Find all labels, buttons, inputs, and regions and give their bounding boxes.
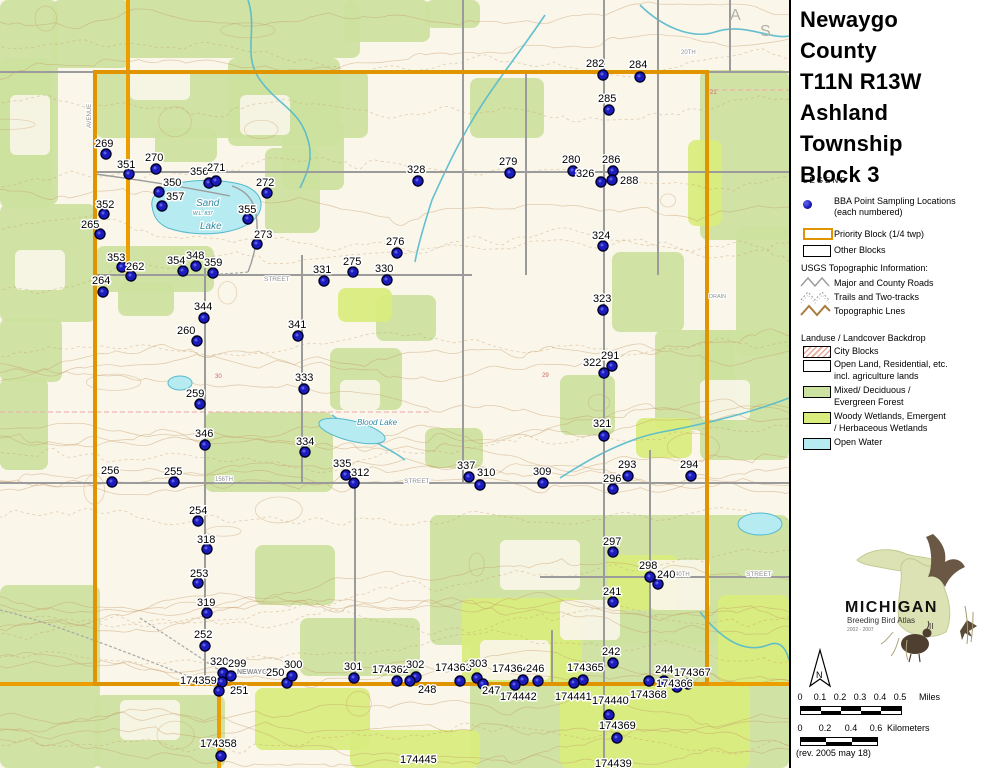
scale-tick-label: 0.1	[814, 692, 827, 702]
map-point-dot-highlight	[203, 644, 206, 647]
map-point-dot-highlight	[211, 271, 214, 274]
map-point-dot-highlight	[395, 251, 398, 254]
map-point-dot-highlight	[541, 481, 544, 484]
map-point-dot-highlight	[229, 674, 232, 677]
map-point-dot-highlight	[416, 179, 419, 182]
map-point-dot-highlight	[610, 364, 613, 367]
map-point-label: 299	[228, 658, 246, 670]
legend-mixed-label: Mixed/ Deciduous /	[834, 385, 911, 396]
quail-icon	[901, 634, 929, 654]
svg-text:Lake: Lake	[200, 221, 222, 232]
map-point-label: 293	[618, 459, 636, 471]
map-point-dot-highlight	[648, 575, 651, 578]
map-point-dot-highlight	[98, 232, 101, 235]
svg-text:20TH: 20TH	[681, 50, 696, 56]
map-point-label: 346	[195, 428, 213, 440]
section-number: 21	[710, 90, 717, 96]
map-point-dot-highlight	[611, 487, 614, 490]
map-point-dot-highlight	[296, 334, 299, 337]
scale-bar-cell	[826, 742, 851, 746]
street-label: 40TH40TH	[675, 572, 690, 578]
forest-patch	[118, 282, 174, 316]
map-point-dot-highlight	[214, 179, 217, 182]
scale-bar-cell	[801, 742, 826, 746]
legend-city-label: City Blocks	[834, 346, 879, 357]
map-point-dot-highlight	[508, 171, 511, 174]
map-point-dot-highlight	[127, 172, 130, 175]
svg-text:STREET: STREET	[746, 571, 772, 578]
map-point-dot-highlight	[615, 736, 618, 739]
map-point-label: 265	[81, 219, 99, 231]
map-point-label: 334	[296, 436, 314, 448]
map-point-dot-highlight	[202, 316, 205, 319]
map-point-label: 174442	[500, 691, 537, 703]
forest-patch	[255, 545, 335, 605]
svg-text:DRAIN: DRAIN	[709, 294, 726, 300]
scale-tick-label: 0.2	[834, 692, 847, 702]
bba-map-page: ASNEWAYGONEWAYGOSTREETSTREETSTREETSTREET…	[0, 0, 1000, 768]
map-point-label: 319	[197, 597, 215, 609]
map-point-dot-highlight	[478, 483, 481, 486]
map-point-label: 270	[145, 152, 163, 164]
forest-swatch	[803, 386, 831, 398]
map-point-dot-highlight	[157, 190, 160, 193]
map-point-dot-highlight	[198, 402, 201, 405]
map-point-label: 356	[190, 166, 208, 178]
map-point-dot-highlight	[194, 264, 197, 267]
svg-text:Sand: Sand	[196, 198, 220, 209]
map-point-label: 240	[657, 569, 675, 581]
map-point-dot-highlight	[602, 371, 605, 374]
map-point-label: 350	[163, 177, 181, 189]
map-canvas: ASNEWAYGONEWAYGOSTREETSTREETSTREETSTREET…	[0, 0, 789, 768]
street-label: STREETSTREET	[746, 571, 772, 578]
svg-text:W.L. 837: W.L. 837	[193, 211, 213, 217]
map-point-dot-highlight	[196, 581, 199, 584]
scale-tick-label: 0.3	[854, 692, 867, 702]
map-point-label: 174369	[599, 720, 636, 732]
map-point-dot-highlight	[395, 679, 398, 682]
map-point-label: 252	[194, 629, 212, 641]
scale-bar-cell	[881, 711, 901, 715]
map-point-dot-highlight	[352, 481, 355, 484]
legend-woody-label: Woody Wetlands, Emergent	[834, 411, 946, 422]
map-point-dot-highlight	[581, 678, 584, 681]
map-point-dot-highlight	[220, 680, 223, 683]
map-point-dot-highlight	[196, 519, 199, 522]
map-point-dot-highlight	[610, 178, 613, 181]
map-point-label: 310	[477, 467, 495, 479]
map-point-dot-highlight	[656, 582, 659, 585]
street-label: AVENUEAVENUE	[87, 104, 93, 128]
map-point-label: 352	[96, 199, 114, 211]
svg-text:40TH: 40TH	[675, 572, 690, 578]
open-land-patch	[500, 540, 580, 590]
svg-text:Blood Lake: Blood Lake	[357, 418, 398, 427]
topo-map: ASNEWAYGONEWAYGOSTREETSTREETSTREETSTREET…	[0, 0, 789, 768]
map-point-dot-highlight	[160, 204, 163, 207]
map-point-dot-highlight	[205, 547, 208, 550]
map-point-label: 269	[95, 138, 113, 150]
map-point-dot-highlight	[467, 475, 470, 478]
map-point-dot-highlight	[246, 217, 249, 220]
map-point-dot-highlight	[572, 681, 575, 684]
scale-tick-label: 0.6	[870, 723, 883, 733]
map-point-label: 244	[655, 664, 673, 676]
map-point-label: 323	[593, 293, 611, 305]
forest-patch	[52, 0, 130, 68]
legend-priority-label: Priority Block (1/4 twp)	[834, 229, 924, 240]
forest-patch	[265, 148, 320, 233]
city-blocks-swatch	[803, 346, 831, 358]
water-label: SandSand	[196, 198, 220, 209]
map-point-label: 262	[126, 261, 144, 273]
map-point-label: 326	[576, 168, 594, 180]
map-point-label: 174439	[595, 758, 632, 768]
priority-block-swatch	[803, 228, 833, 240]
map-point-dot-highlight	[102, 212, 105, 215]
map-point-label: 260	[177, 325, 195, 337]
pond	[738, 513, 782, 535]
map-point-dot-highlight	[285, 681, 288, 684]
open-water-swatch	[803, 438, 831, 450]
map-point-dot-highlight	[303, 450, 306, 453]
legend-other-label: Other Blocks	[834, 245, 886, 256]
map-point-label: 273	[254, 229, 272, 241]
township-watermark: S	[760, 23, 771, 40]
map-point-label: 321	[593, 418, 611, 430]
scale-unit-label: Kilometers	[887, 723, 930, 733]
open-land-patch	[130, 60, 190, 100]
svg-text:AVENUE: AVENUE	[87, 104, 93, 128]
map-point-label: 282	[586, 58, 604, 70]
map-point-dot-highlight	[352, 676, 355, 679]
map-point-dot-highlight	[601, 244, 604, 247]
map-point-label: 291	[601, 350, 619, 362]
map-point-label: 300	[284, 659, 302, 671]
map-point-label: 322	[583, 357, 601, 369]
map-point-dot-highlight	[385, 278, 388, 281]
map-point-label: 174441	[555, 691, 592, 703]
map-point-label: 296	[603, 473, 621, 485]
map-point-label: 333	[295, 372, 313, 384]
map-point-label: 335	[333, 458, 351, 470]
map-point-dot-highlight	[408, 679, 411, 682]
logo-name: MICHIGAN	[845, 599, 938, 616]
map-point-label: 284	[629, 59, 647, 71]
map-point-label: 174363	[435, 662, 472, 674]
map-point-label: 246	[526, 663, 544, 675]
page-title: Newaygo County T11N R13W Ashland Townshi…	[800, 4, 922, 190]
map-point-label: 174359	[180, 675, 217, 687]
map-point-label: 174364	[492, 663, 529, 675]
map-point-label: 279	[499, 156, 517, 168]
map-point-label: 328	[407, 164, 425, 176]
map-point-dot-highlight	[475, 676, 478, 679]
open-land-patch	[240, 95, 290, 135]
wetland-patch	[338, 288, 392, 322]
map-point-dot-highlight	[689, 474, 692, 477]
map-point-dot-highlight	[120, 265, 123, 268]
map-point-dot-highlight	[647, 679, 650, 682]
legend-heading: LEGEND	[803, 176, 848, 185]
map-point-dot-highlight	[611, 169, 614, 172]
map-point-dot-highlight	[344, 473, 347, 476]
map-point-dot-highlight	[205, 611, 208, 614]
map-point-dot-highlight	[602, 434, 605, 437]
map-point-label: 303	[469, 658, 487, 670]
svg-text:STREET: STREET	[404, 478, 430, 485]
map-point-label: 174368	[630, 689, 667, 701]
section-number: 29	[542, 373, 549, 379]
wetland-swatch	[803, 412, 831, 424]
map-point-label: 285	[598, 93, 616, 105]
map-point-label: 174365	[567, 662, 604, 674]
map-point-dot-highlight	[154, 167, 157, 170]
map-point-dot-highlight	[101, 290, 104, 293]
forest-patch	[612, 252, 684, 332]
map-point-label: 297	[603, 536, 621, 548]
forest-patch	[0, 378, 48, 470]
map-point-label: 355	[238, 204, 256, 216]
scale-tick-label: 0.2	[819, 723, 832, 733]
map-point-dot-highlight	[110, 480, 113, 483]
map-point-label: 309	[533, 466, 551, 478]
scale-tick-label: 0.4	[845, 723, 858, 733]
map-point-label: 344	[194, 301, 212, 313]
map-point-dot-highlight	[265, 191, 268, 194]
forest-patch	[124, 0, 360, 58]
map-point-label: 354	[167, 255, 185, 267]
svg-text:156TH: 156TH	[215, 477, 233, 483]
map-point-label: 275	[343, 256, 361, 268]
map-point-label: 288	[620, 175, 638, 187]
bba-point-swatch	[803, 200, 812, 209]
legend-roads-label: Major and County Roads	[834, 278, 934, 289]
map-point-dot-highlight	[638, 75, 641, 78]
water-label: LakeLake	[200, 221, 222, 232]
map-point-label: 255	[164, 466, 182, 478]
map-point-label: 348	[186, 250, 204, 262]
map-point-dot-highlight	[571, 169, 574, 172]
legend-open-label: Open Land, Residential, etc.	[834, 359, 948, 370]
legend-trails-label: Trails and Two-tracks	[834, 292, 919, 303]
map-point-label: 259	[186, 388, 204, 400]
map-point-label: 254	[189, 505, 207, 517]
map-point-dot-highlight	[203, 443, 206, 446]
map-point-label: 312	[351, 467, 369, 479]
map-point-label: 253	[190, 568, 208, 580]
scale-bar-cell	[821, 711, 841, 715]
other-blocks-swatch	[803, 245, 831, 257]
street-label: STREETSTREET	[404, 478, 430, 485]
map-point-label: 302	[406, 659, 424, 671]
map-point-dot-highlight	[611, 661, 614, 664]
map-point-dot-highlight	[322, 279, 325, 282]
revision-note: (rev. 2005 may 18)	[796, 748, 871, 758]
map-point-dot-highlight	[601, 308, 604, 311]
map-point-dot-highlight	[607, 108, 610, 111]
map-point-dot-highlight	[181, 269, 184, 272]
map-point-dot-highlight	[172, 480, 175, 483]
map-point-dot-highlight	[219, 754, 222, 757]
street-label: STREETSTREET	[264, 276, 290, 283]
map-point-label: 174362	[372, 664, 409, 676]
map-point-label: 324	[592, 230, 610, 242]
map-point-label: 298	[639, 560, 657, 572]
legend-bba-label2: (each numbered)	[834, 207, 903, 218]
map-point-dot-highlight	[207, 181, 210, 184]
topo-lines-swatch	[799, 302, 831, 318]
logo-numeral: II	[929, 622, 933, 631]
street-label: DRAINDRAIN	[709, 294, 726, 300]
usgs-heading: USGS Topographic Information:	[801, 263, 928, 273]
open-land-swatch	[803, 360, 831, 372]
quail-legs	[909, 654, 920, 662]
map-point-label: 318	[197, 534, 215, 546]
map-point-label: 174358	[200, 738, 237, 750]
map-point-label: 276	[386, 236, 404, 248]
info-panel: Newaygo County T11N R13W Ashland Townshi…	[791, 0, 1000, 768]
map-point-label: 301	[344, 661, 362, 673]
map-point-dot-highlight	[521, 678, 524, 681]
map-point-label: 271	[207, 162, 225, 174]
map-point-label: 280	[562, 154, 580, 166]
map-point-label: 359	[204, 257, 222, 269]
map-point-label: 256	[101, 465, 119, 477]
map-point-label: 241	[603, 586, 621, 598]
map-point-label: 337	[457, 460, 475, 472]
street-label: 20TH20TH	[681, 50, 696, 56]
map-point-label: 174440	[592, 695, 629, 707]
scale-bar-cell	[861, 711, 881, 715]
map-point-label: 330	[375, 263, 393, 275]
north-arrow: N	[805, 648, 835, 694]
map-point-label: 353	[107, 252, 125, 264]
map-point-label: 251	[230, 685, 248, 697]
street-label: 156TH156TH	[215, 477, 233, 483]
map-point-dot-highlight	[536, 679, 539, 682]
north-arrow-label: N	[816, 670, 823, 680]
map-point-label: 272	[256, 177, 274, 189]
map-point-dot-highlight	[221, 671, 224, 674]
scale-tick-label: 0.4	[874, 692, 887, 702]
scale-tick-label: 0	[797, 723, 802, 733]
map-point-dot-highlight	[513, 683, 516, 686]
map-point-label: 341	[288, 319, 306, 331]
legend-topo-label: Topographic Lnes	[834, 306, 905, 317]
section-number: 30	[215, 374, 222, 380]
map-point-label: 250	[266, 667, 284, 679]
map-point-dot-highlight	[290, 674, 293, 677]
miles-scale-bar	[800, 706, 902, 715]
map-point-dot-highlight	[195, 339, 198, 342]
mbba-logo: MICHIGAN Breeding Bird Atlas 2002 - 2007…	[837, 528, 997, 668]
map-point-label: 248	[418, 684, 436, 696]
logo-years: 2002 - 2007	[847, 627, 874, 633]
legend-water-label: Open Water	[834, 437, 882, 448]
logo-subtitle: Breeding Bird Atlas	[847, 616, 915, 625]
map-point-label: 294	[680, 459, 698, 471]
water-label: Blood LakeBlood Lake	[357, 418, 398, 427]
map-point-dot-highlight	[458, 679, 461, 682]
map-point-label: 357	[166, 191, 184, 203]
landuse-heading: Landuse / Landcover Backdrop	[801, 333, 926, 343]
map-point-dot-highlight	[607, 713, 610, 716]
km-scale-bar	[800, 737, 878, 746]
forest-patch	[344, 0, 430, 42]
map-point-dot-highlight	[601, 73, 604, 76]
map-point-dot-highlight	[302, 387, 305, 390]
map-point-label: 174445	[400, 754, 437, 766]
map-point-dot-highlight	[104, 152, 107, 155]
map-point-label: 286	[602, 154, 620, 166]
scale-unit-label: Miles	[919, 692, 940, 702]
map-point-label: 264	[92, 275, 110, 287]
songbird-icon	[960, 620, 977, 640]
map-point-label: 320	[210, 656, 228, 668]
scale-bar-cell	[841, 711, 861, 715]
scale-bar-cell	[852, 742, 877, 746]
open-land-patch	[15, 250, 65, 290]
map-point-dot-highlight	[626, 474, 629, 477]
legend-open-label2: incl. agriculture lands	[834, 371, 919, 382]
legend-mixed-label2: Evergreen Forest	[834, 397, 904, 408]
map-point-label: 247	[482, 685, 500, 697]
legend-bba-label: BBA Point Sampling Locations	[834, 196, 956, 207]
map-point-dot-highlight	[217, 689, 220, 692]
map-point-label: 351	[117, 159, 135, 171]
open-land-patch	[10, 95, 50, 155]
map-point-dot-highlight	[611, 600, 614, 603]
scale-tick-label: 0	[797, 692, 802, 702]
map-point-dot-highlight	[599, 180, 602, 183]
map-point-dot-highlight	[255, 242, 258, 245]
map-point-dot-highlight	[611, 550, 614, 553]
map-point-label: 242	[602, 646, 620, 658]
water-label: W.L. 837W.L. 837	[193, 211, 213, 217]
forest-patch	[470, 78, 544, 138]
township-watermark: A	[730, 7, 741, 24]
svg-text:STREET: STREET	[264, 276, 290, 283]
map-point-dot-highlight	[351, 270, 354, 273]
legend-woody-label2: / Herbaceous Wetlands	[834, 423, 927, 434]
open-land-patch	[340, 380, 380, 410]
scale-bar-cell	[801, 711, 821, 715]
map-point-label: 331	[313, 264, 331, 276]
map-point-dot-highlight	[129, 274, 132, 277]
scale-tick-label: 0.5	[894, 692, 907, 702]
open-land-patch	[120, 700, 180, 740]
